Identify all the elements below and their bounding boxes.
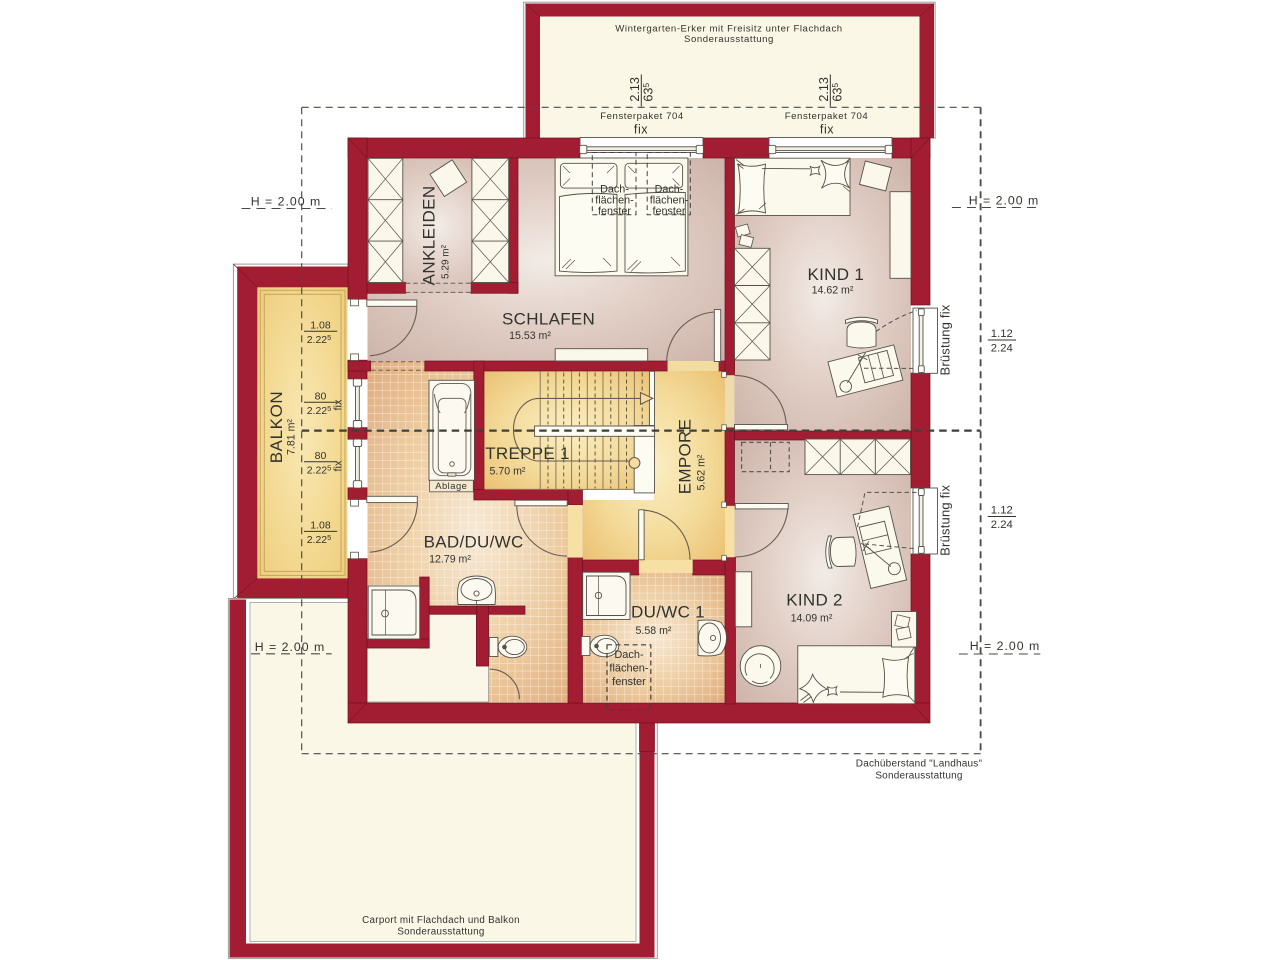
svg-text:DU/WC 1: DU/WC 1 — [631, 603, 705, 622]
svg-text:15.53 m²: 15.53 m² — [509, 330, 551, 342]
svg-text:fenster: fenster — [598, 206, 631, 218]
svg-text:1.12: 1.12 — [991, 505, 1013, 517]
svg-text:1.08: 1.08 — [310, 320, 331, 332]
svg-text:H = 2.00 m: H = 2.00 m — [251, 195, 322, 209]
svg-text:7.81 m²: 7.81 m² — [286, 419, 298, 455]
svg-text:EMPORE: EMPORE — [676, 419, 695, 494]
svg-text:Carport mit Flachdach und Balk: Carport mit Flachdach und Balkon — [362, 915, 520, 926]
svg-text:5.29 m²: 5.29 m² — [441, 244, 452, 279]
svg-text:H = 2.00 m: H = 2.00 m — [255, 640, 326, 654]
svg-text:SCHLAFEN: SCHLAFEN — [502, 310, 595, 329]
svg-text:2.24: 2.24 — [991, 519, 1013, 531]
svg-text:2.13: 2.13 — [628, 77, 642, 102]
svg-text:Ablage: Ablage — [435, 480, 467, 491]
svg-text:5.62 m²: 5.62 m² — [696, 454, 708, 490]
svg-text:KIND 2: KIND 2 — [786, 591, 843, 610]
svg-text:KIND 1: KIND 1 — [808, 265, 865, 284]
svg-text:Brüstung fix: Brüstung fix — [938, 304, 953, 375]
svg-text:fix: fix — [820, 123, 834, 137]
svg-text:Sonderausstattung: Sonderausstattung — [397, 927, 484, 938]
svg-text:14.62 m²: 14.62 m² — [812, 285, 854, 297]
svg-text:Fensterpaket 704: Fensterpaket 704 — [600, 111, 684, 122]
svg-text:Dachüberstand "Landhaus": Dachüberstand "Landhaus" — [856, 759, 983, 770]
svg-text:80: 80 — [315, 450, 327, 462]
svg-text:fenster: fenster — [612, 676, 646, 688]
svg-text:H = 2.00 m: H = 2.00 m — [970, 639, 1041, 653]
svg-text:1.12: 1.12 — [991, 328, 1013, 340]
svg-text:80: 80 — [315, 391, 327, 403]
svg-text:fix: fix — [333, 399, 345, 411]
svg-text:fenster: fenster — [652, 206, 685, 218]
svg-text:2.24: 2.24 — [991, 343, 1013, 355]
svg-text:TREPPE 1: TREPPE 1 — [485, 444, 570, 463]
svg-text:fix: fix — [333, 460, 345, 472]
svg-text:2.13: 2.13 — [817, 77, 831, 102]
svg-text:12.79 m²: 12.79 m² — [429, 554, 471, 566]
svg-text:5.58 m²: 5.58 m² — [636, 625, 672, 637]
svg-text:14.09 m²: 14.09 m² — [791, 612, 833, 624]
svg-text:ANKLEIDEN: ANKLEIDEN — [420, 185, 439, 285]
svg-text:BAD/DU/WC: BAD/DU/WC — [424, 533, 524, 552]
svg-text:Dach-: Dach- — [614, 649, 644, 661]
svg-text:1.08: 1.08 — [310, 520, 331, 532]
svg-text:5.70 m²: 5.70 m² — [490, 466, 526, 478]
svg-text:fix: fix — [634, 123, 648, 137]
svg-text:Fensterpaket 704: Fensterpaket 704 — [785, 111, 869, 122]
svg-text:Sonderausstattung: Sonderausstattung — [684, 34, 774, 45]
svg-text:flächen-: flächen- — [609, 663, 648, 675]
svg-text:Sonderausstattung: Sonderausstattung — [875, 771, 962, 782]
svg-text:Brüstung fix: Brüstung fix — [938, 484, 953, 555]
svg-text:H = 2.00 m: H = 2.00 m — [969, 194, 1040, 208]
svg-text:BALKON: BALKON — [267, 391, 286, 464]
